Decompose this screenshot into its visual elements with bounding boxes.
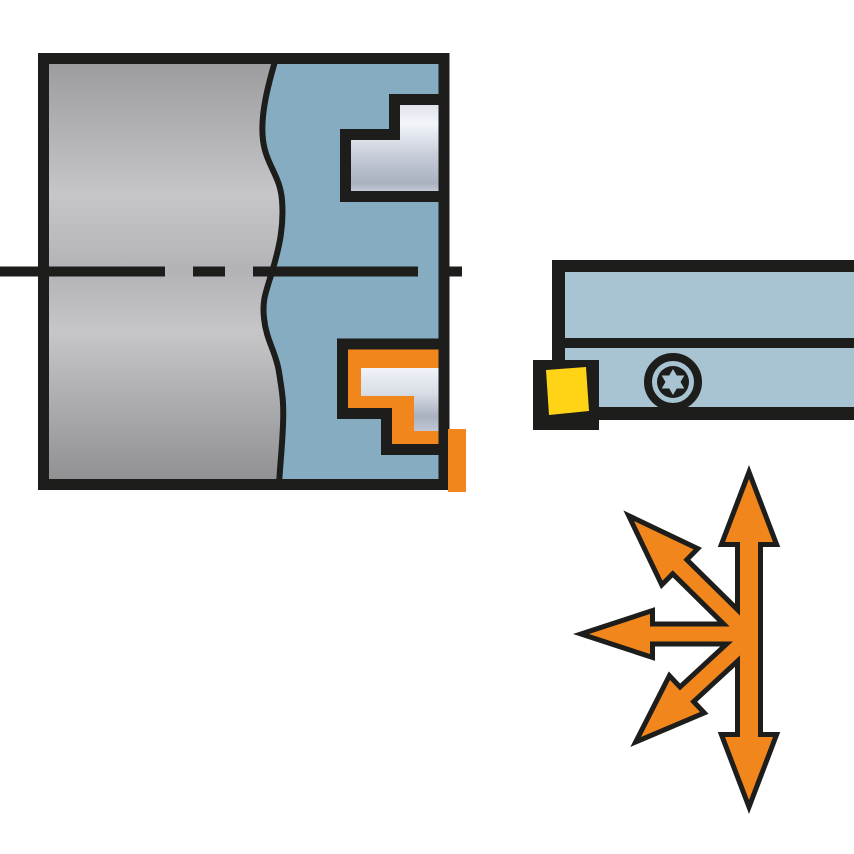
cutting-insert [546, 367, 589, 415]
orange-edge-tab [448, 429, 466, 492]
toolholder-assembly [533, 260, 854, 430]
multi-direction-arrows [589, 479, 773, 800]
illustration-canvas [0, 0, 854, 854]
toolholder-upper-bar [565, 272, 854, 338]
workpiece-assembly [0, 58, 466, 492]
toolholder-lower-bar [565, 348, 854, 407]
machining-diagram [0, 0, 854, 854]
arrow-fills [589, 479, 773, 800]
